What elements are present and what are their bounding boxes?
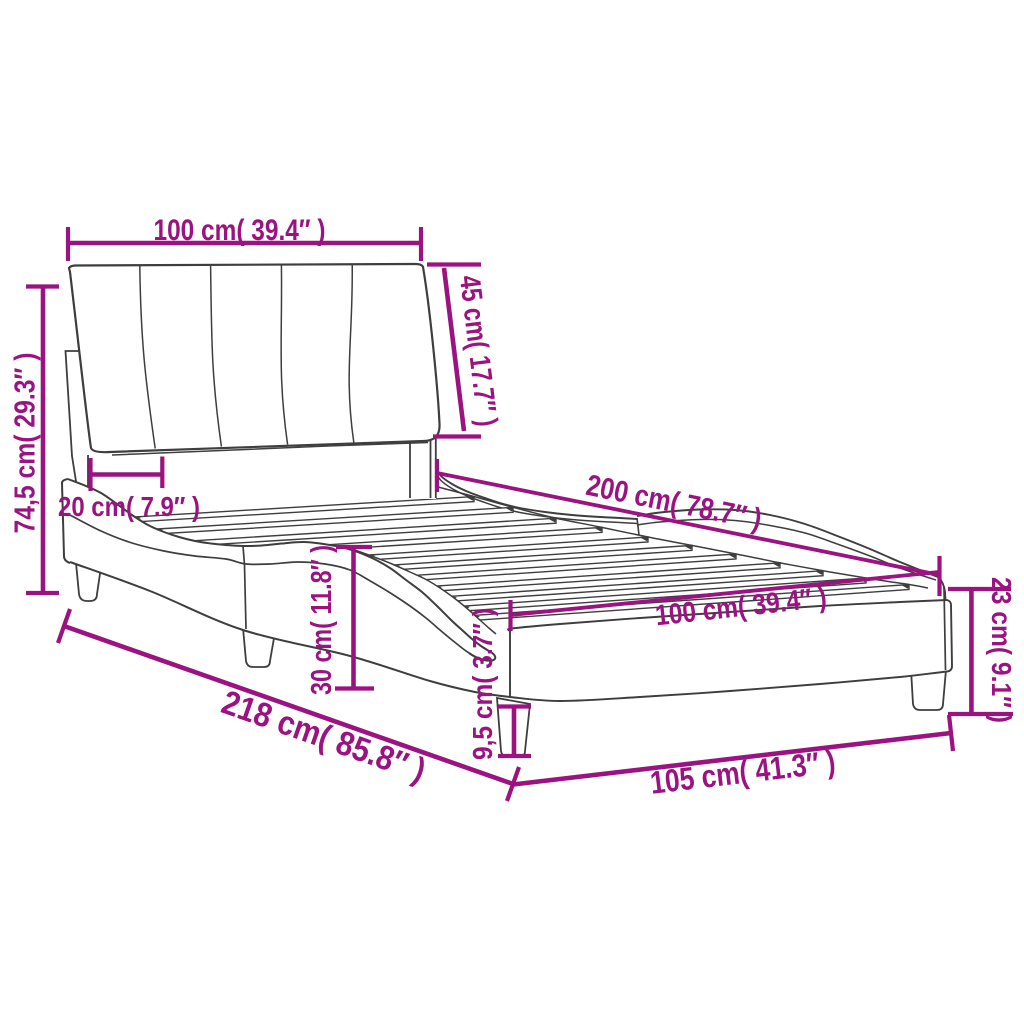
svg-text:30 cm( 11.8″ ): 30 cm( 11.8″ ): [306, 545, 338, 695]
svg-text:100 cm( 39.4″ ): 100 cm( 39.4″ ): [154, 214, 326, 247]
svg-text:20 cm( 7.9″ ): 20 cm( 7.9″ ): [58, 491, 200, 522]
svg-text:74,5 cm( 29.3″ ): 74,5 cm( 29.3″ ): [10, 353, 42, 534]
svg-text:9,5 cm( 3.7″ ): 9,5 cm( 3.7″ ): [467, 608, 498, 760]
svg-text:23 cm( 9.1″ ): 23 cm( 9.1″ ): [986, 577, 1017, 723]
